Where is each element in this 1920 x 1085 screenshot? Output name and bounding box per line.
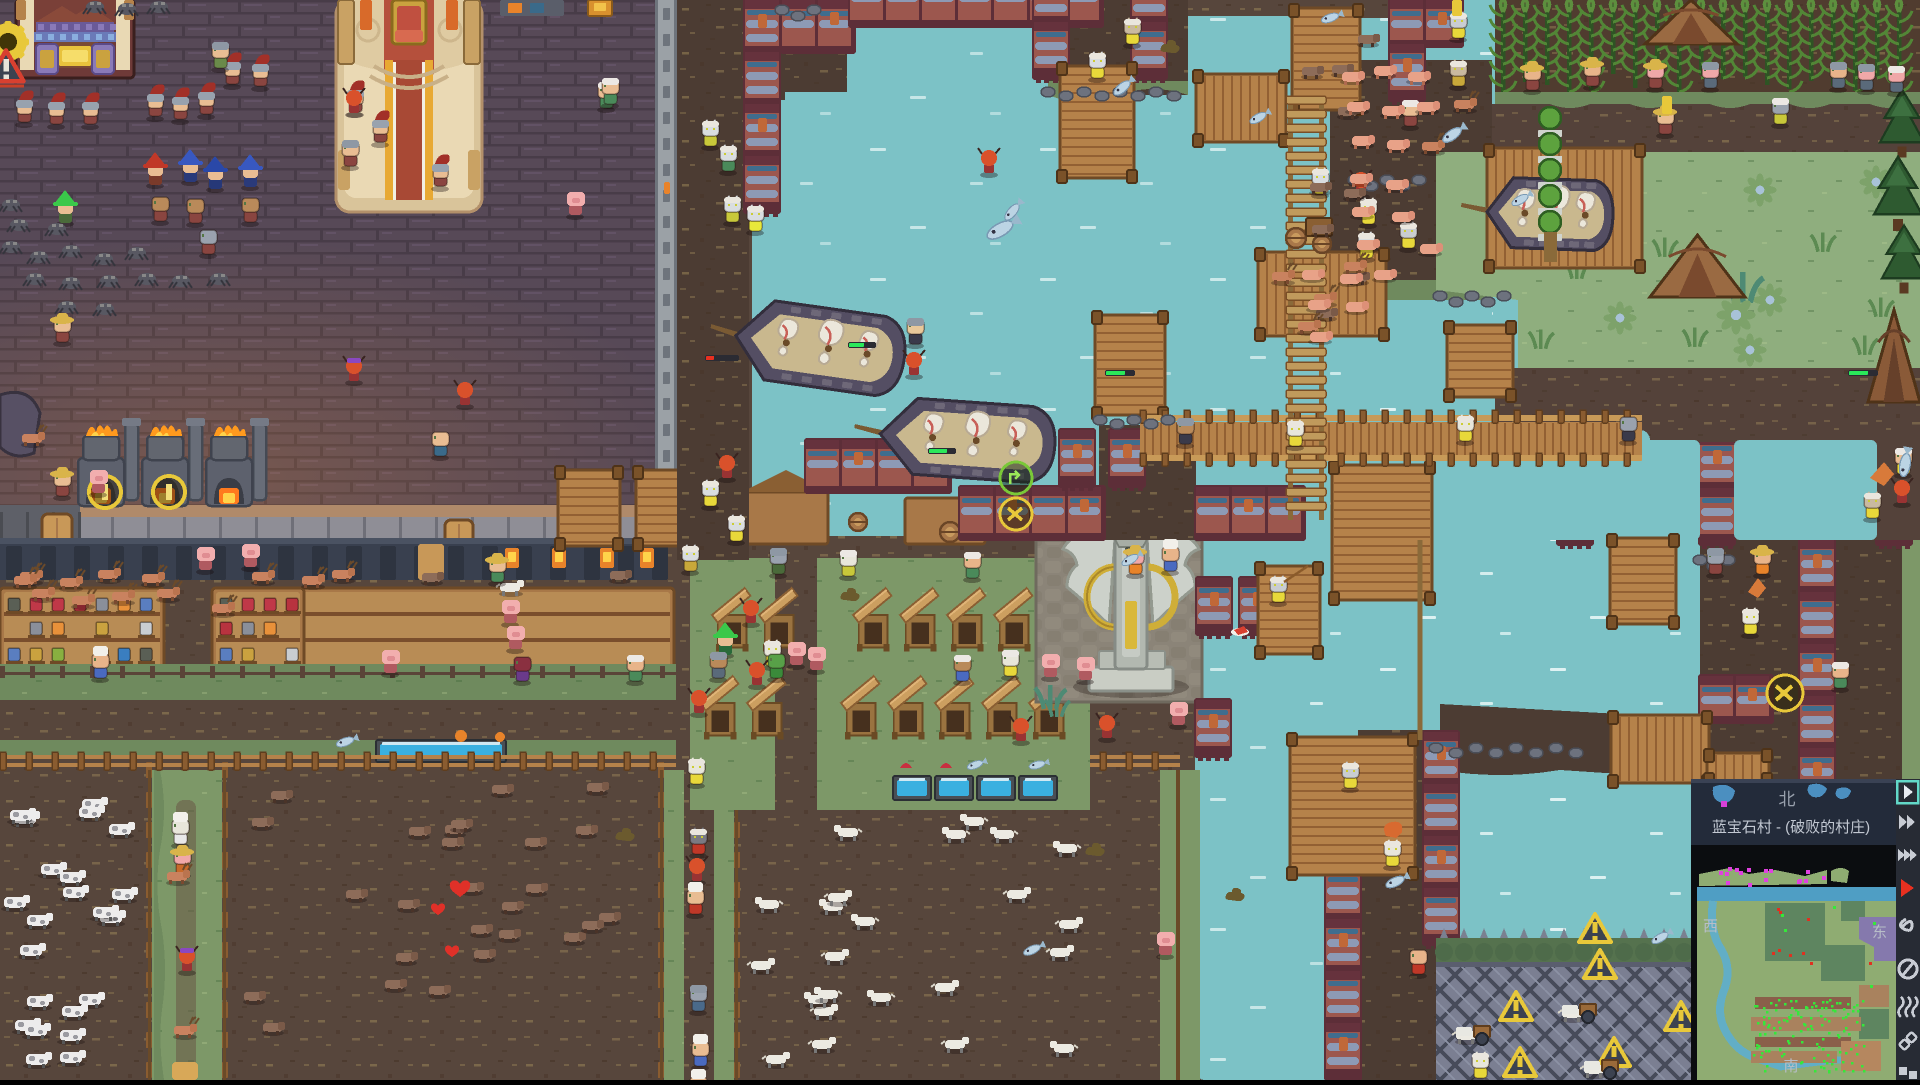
svg-text:西: 西 [1703,918,1718,935]
svg-text:北: 北 [1779,790,1796,809]
svg-text:南: 南 [1783,1058,1798,1075]
svg-text:蓝宝石村 - (破败的村庄): 蓝宝石村 - (破败的村庄) [1712,818,1870,836]
svg-text:东: 东 [1872,924,1887,941]
